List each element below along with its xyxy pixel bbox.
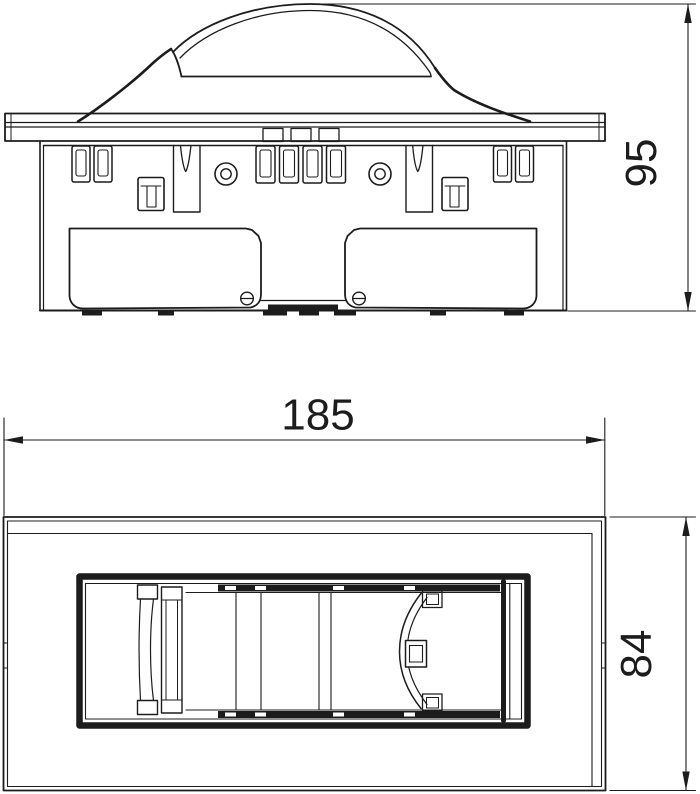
snap-clips-left bbox=[72, 146, 112, 182]
arrow-left-icon bbox=[4, 436, 23, 443]
arrow-up-icon bbox=[682, 517, 689, 536]
arrow-down-icon bbox=[684, 292, 691, 311]
arrow-down-icon bbox=[682, 772, 689, 791]
hinge-columns bbox=[138, 585, 183, 715]
side-view: 95 bbox=[5, 4, 696, 316]
device-body bbox=[40, 129, 567, 316]
grip-handle bbox=[400, 591, 443, 711]
screw-left bbox=[215, 163, 237, 185]
latch-left bbox=[138, 178, 164, 211]
v-guide-right bbox=[406, 146, 433, 213]
arrow-up-icon bbox=[684, 4, 691, 23]
cover-frame bbox=[4, 517, 606, 791]
dimension-plan-depth: 84 bbox=[610, 517, 696, 791]
screw-right bbox=[369, 163, 391, 185]
lid-opening bbox=[80, 577, 528, 726]
seal-band-highlights bbox=[225, 586, 415, 717]
terminal-box-left bbox=[70, 229, 262, 309]
v-guide-left bbox=[174, 146, 201, 213]
dimension-plan-width: 185 bbox=[4, 391, 605, 516]
technical-drawing: 95 bbox=[0, 0, 700, 794]
technical-drawing-page: 95 bbox=[0, 0, 700, 794]
dimension-side-height-label: 95 bbox=[617, 139, 666, 188]
snap-clips-center bbox=[256, 146, 346, 183]
snap-clips-right bbox=[494, 146, 534, 182]
dome-profile bbox=[78, 4, 530, 122]
mounting-plate bbox=[5, 114, 605, 142]
latch-right bbox=[442, 178, 468, 211]
dimension-plan-width-label: 185 bbox=[281, 391, 354, 440]
dimension-plan-depth-label: 84 bbox=[612, 630, 661, 679]
arrow-right-icon bbox=[586, 436, 605, 443]
terminal-box-right bbox=[345, 229, 537, 309]
plan-view: 185 84 bbox=[4, 391, 696, 791]
